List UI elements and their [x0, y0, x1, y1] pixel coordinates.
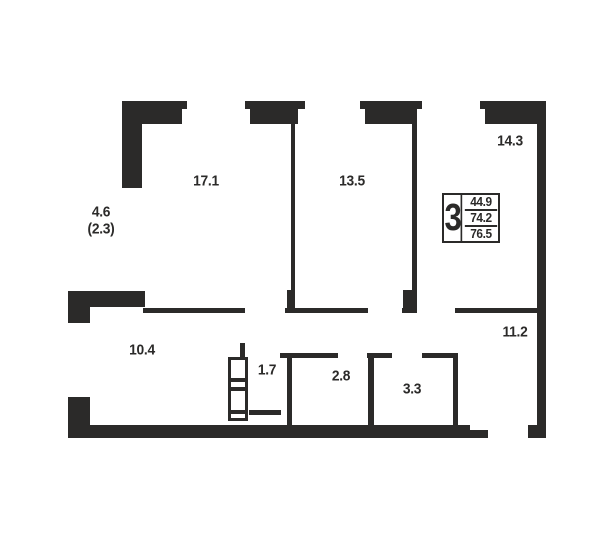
- closet-bottom-wall: [249, 410, 281, 415]
- wardrobe-shelf-2: [228, 387, 248, 391]
- interior-wall-middle-2: [285, 308, 368, 313]
- room-area-label-3-3: 3.3: [403, 381, 421, 398]
- total-area-value: 76.5: [465, 227, 497, 241]
- living-area-value: 44.9: [465, 195, 497, 211]
- apartment-summary-box: 3 44.9 74.2 76.5: [442, 193, 500, 243]
- usable-area-value: 74.2: [465, 211, 497, 227]
- interior-wall-middle-3: [455, 308, 537, 313]
- exterior-wall-right: [537, 124, 546, 438]
- exterior-wall-left-jog: [68, 291, 145, 307]
- top-wall-sill-2: [245, 101, 305, 109]
- room-area-label-2-8: 2.8: [332, 368, 350, 385]
- room-area-label-10-4: 10.4: [129, 342, 155, 359]
- wall-3-3-11-2: [453, 353, 458, 425]
- balcony-reduced-area-label: (2.3): [88, 221, 115, 238]
- exterior-wall-bottom-right-block: [528, 425, 546, 438]
- exterior-wall-left-lower-a: [68, 307, 90, 323]
- exterior-wall-left-upper: [122, 109, 142, 188]
- apartment-floor-plan: 17.1 13.5 14.3 10.4 1.7 2.8 3.3 11.2 4.6…: [0, 0, 600, 555]
- wall-2-8-3-3: [368, 353, 374, 425]
- interior-wall-13-5-hall-stub: [402, 308, 417, 313]
- wall-top-of-3-3-right: [422, 353, 456, 358]
- top-wall-sill-3: [360, 101, 422, 109]
- exterior-wall-left-lower-b: [68, 397, 90, 426]
- wall-1-7-2-8: [287, 353, 292, 425]
- room-area-label-11-2: 11.2: [503, 324, 528, 341]
- interior-wall-13-5-hall-pier: [403, 290, 417, 308]
- room-area-label-14-3: 14.3: [497, 133, 523, 150]
- room-area-label-17-1: 17.1: [193, 173, 219, 190]
- entrance-threshold-step: [470, 430, 488, 438]
- balcony-area-label: 4.6: [92, 204, 110, 221]
- wardrobe-shelf-1: [228, 378, 248, 382]
- exterior-wall-bottom: [68, 425, 470, 438]
- wardrobe-shelf-3: [228, 410, 248, 414]
- top-wall-body-4: [485, 109, 546, 124]
- summary-values: 44.9 74.2 76.5: [464, 195, 498, 241]
- interior-wall-17-1-13-5: [291, 124, 295, 290]
- interior-wall-middle-1: [143, 308, 245, 313]
- room-area-label-13-5: 13.5: [339, 173, 365, 190]
- room-area-label-1-7: 1.7: [258, 362, 276, 379]
- top-wall-sill-4: [480, 101, 546, 109]
- top-wall-body-3: [365, 109, 417, 124]
- rooms-count: 3: [446, 195, 462, 241]
- top-wall-sill-1: [122, 101, 187, 109]
- interior-wall-17-1-13-5-pier: [287, 290, 295, 308]
- interior-wall-13-5-hall: [412, 124, 417, 290]
- top-wall-body-2: [250, 109, 298, 124]
